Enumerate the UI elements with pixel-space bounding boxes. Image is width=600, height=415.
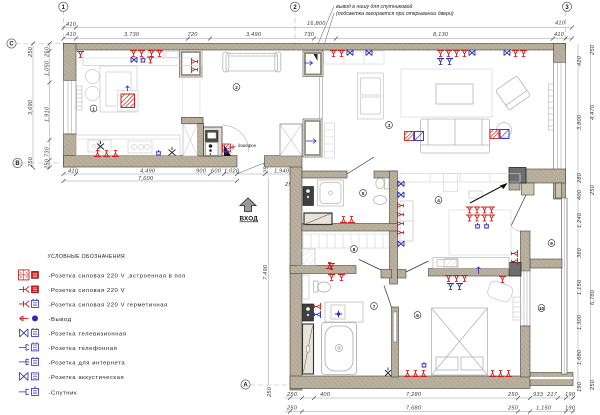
svg-text:7,600: 7,600 [138, 176, 154, 182]
svg-text:3: 3 [388, 123, 391, 128]
svg-text:730: 730 [304, 32, 315, 38]
svg-text:вывод в нишу для спутниковой: вывод в нишу для спутниковой [336, 3, 412, 10]
svg-text:360: 360 [577, 247, 583, 258]
svg-text:250: 250 [590, 379, 596, 391]
svg-text:410: 410 [554, 32, 565, 38]
svg-text:(подсветка загорается при откр: (подсветка загорается при открывании две… [336, 11, 454, 17]
svg-text:-Розетка телевизионная: -Розетка телевизионная [49, 332, 127, 338]
svg-text:190: 190 [577, 381, 583, 392]
svg-text:7,280: 7,280 [406, 392, 422, 398]
svg-text:4,490: 4,490 [140, 169, 156, 175]
svg-text:1,300: 1,300 [577, 314, 583, 330]
svg-text:400: 400 [320, 392, 331, 398]
svg-text:1,150: 1,150 [577, 279, 583, 295]
svg-text:-Вывод: -Вывод [49, 317, 72, 323]
svg-text:3,690: 3,690 [28, 99, 34, 115]
svg-text:190: 190 [565, 392, 576, 398]
svg-text:-Розетка силовая 220 V гермети: -Розетка силовая 220 V герметичная [49, 303, 168, 309]
svg-text:280: 280 [577, 172, 583, 184]
svg-text:250: 250 [286, 392, 298, 398]
svg-text:720: 720 [188, 32, 199, 38]
svg-text:B: B [15, 161, 20, 167]
svg-text:6,780: 6,780 [590, 289, 596, 305]
svg-text:-Розетка для интернета: -Розетка для интернета [49, 361, 126, 367]
svg-text:4: 4 [437, 198, 440, 203]
svg-text:250: 250 [590, 184, 596, 196]
svg-text:2: 2 [235, 85, 238, 90]
svg-text:-Розетка телефонная: -Розетка телефонная [49, 346, 118, 352]
svg-text:190: 190 [565, 406, 576, 412]
svg-text:250: 250 [45, 158, 51, 170]
svg-text:410: 410 [66, 22, 77, 28]
svg-text:410: 410 [68, 169, 79, 175]
svg-text:3,800: 3,800 [577, 114, 583, 130]
svg-text:1,940: 1,940 [274, 169, 290, 175]
svg-text:домофон: домофон [238, 143, 257, 148]
svg-text:A: A [243, 383, 248, 389]
svg-text:410: 410 [66, 32, 77, 38]
svg-text:-Розетка силовая 220 V ,встрое: -Розетка силовая 220 V ,встроенная в пол [49, 274, 186, 280]
svg-text:250: 250 [507, 392, 519, 398]
svg-text:250: 250 [590, 44, 596, 56]
svg-text:3,730: 3,730 [124, 32, 140, 38]
svg-text:600: 600 [211, 169, 222, 175]
svg-text:1,910: 1,910 [45, 106, 51, 122]
svg-text:1,240: 1,240 [577, 212, 583, 228]
svg-text:5: 5 [362, 191, 365, 196]
svg-text:9: 9 [550, 241, 553, 246]
svg-text:933: 933 [533, 392, 544, 398]
svg-text:16,800: 16,800 [307, 21, 326, 27]
svg-text:250: 250 [286, 406, 298, 412]
svg-text:10: 10 [539, 306, 545, 311]
svg-text:7,680: 7,680 [406, 406, 422, 412]
svg-text:7: 7 [373, 304, 376, 309]
svg-text:250: 250 [507, 406, 519, 412]
svg-text:8: 8 [353, 247, 356, 252]
svg-text:400: 400 [577, 189, 583, 200]
svg-text:250: 250 [267, 386, 273, 398]
svg-text:1,050: 1,050 [45, 60, 51, 76]
svg-text:250: 250 [28, 156, 34, 168]
svg-text:-Спутник: -Спутник [49, 391, 78, 397]
svg-text:730: 730 [45, 146, 51, 157]
svg-text:420: 420 [577, 55, 583, 66]
svg-text:ВХОД: ВХОД [240, 216, 259, 223]
svg-text:1,680: 1,680 [577, 349, 583, 365]
svg-text:7,490: 7,490 [263, 264, 269, 280]
svg-text:-Розетка силовая 220 V: -Розетка силовая 220 V [49, 288, 126, 294]
svg-text:8,130: 8,130 [433, 32, 449, 38]
svg-text:250: 250 [28, 46, 34, 58]
svg-text:6: 6 [416, 313, 419, 318]
svg-text:3,490: 3,490 [246, 32, 262, 38]
svg-text:900: 900 [196, 169, 207, 175]
svg-text:4,470: 4,470 [590, 104, 596, 120]
svg-text:1: 1 [92, 106, 95, 111]
svg-text:УСЛОВНЫЕ ОБОЗНАЧЕНИЯ: УСЛОВНЫЕ ОБОЗНАЧЕНИЯ [48, 254, 126, 260]
svg-text:C: C [9, 42, 14, 48]
svg-text:410: 410 [555, 21, 566, 27]
svg-text:-Розетка аккустическая: -Розетка аккустическая [49, 375, 125, 381]
svg-text:217: 217 [546, 392, 558, 398]
svg-text:250: 250 [45, 46, 51, 58]
svg-text:1,150: 1,150 [536, 406, 552, 412]
